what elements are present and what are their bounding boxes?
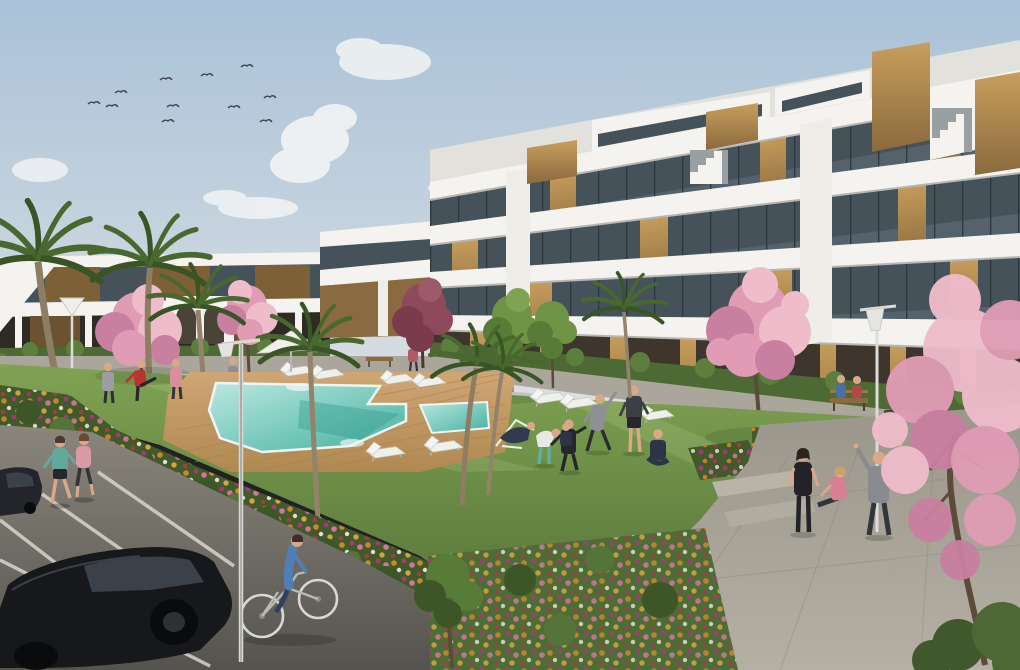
roof-timber-tower xyxy=(975,72,1020,175)
rendered-scene xyxy=(0,0,1020,670)
car-dark-sedan xyxy=(0,467,42,516)
pool-steps xyxy=(340,439,364,447)
scene-image xyxy=(0,0,1020,670)
kids-pool xyxy=(420,402,489,433)
bench-sitter-blue xyxy=(836,375,846,398)
roof-timber-tower xyxy=(872,42,930,152)
bench-sitter-red xyxy=(852,376,862,398)
cloud xyxy=(12,158,68,182)
